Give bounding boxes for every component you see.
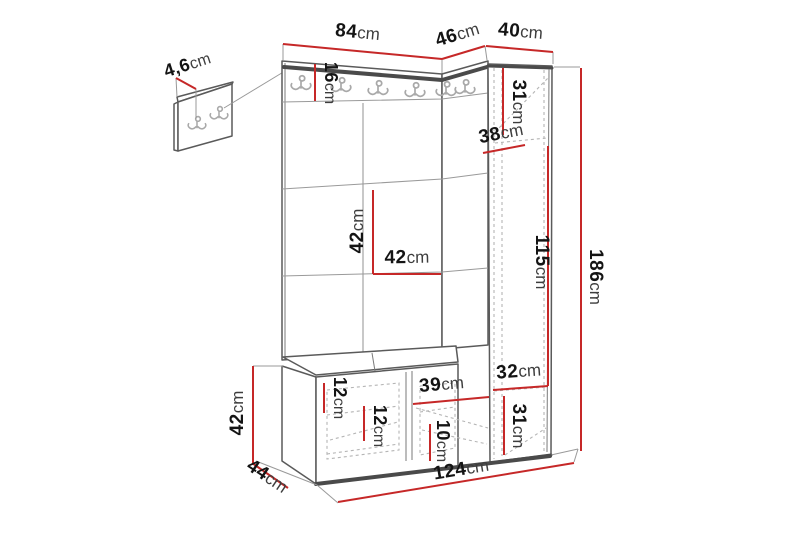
label-bench-shelf-height: 10cm (433, 420, 453, 462)
floor-edge (551, 449, 578, 455)
label-corner-width: 46cm (433, 18, 482, 51)
detail-connector-line (224, 68, 290, 108)
dimension-line-panel-thickness (176, 78, 196, 89)
label-top-width: 84cm (334, 20, 381, 45)
label-panel-thickness: 4,6cm (161, 47, 213, 81)
extension-line (176, 78, 177, 97)
bench-left-face (282, 366, 316, 484)
cabinet-top-dark-edge (488, 66, 552, 68)
label-panel-tile-height: 42cm (347, 209, 368, 254)
wall-hook-panel (174, 68, 290, 151)
label-cabinet-width: 40cm (497, 19, 543, 44)
dimension-line-top-width (283, 44, 442, 59)
label-hook-rail-height: 16cm (321, 62, 341, 104)
label-total-height: 186cm (585, 249, 606, 305)
extension-line (574, 449, 578, 462)
extension-line (317, 485, 338, 503)
label-cabinet-bottom-height: 31cm (508, 404, 529, 449)
corner-panel-face (442, 61, 488, 349)
extension-line (485, 46, 487, 60)
label-bench-inner-height: 12cm (370, 405, 390, 447)
label-cabinet-inner-height: 115cm (531, 235, 552, 290)
label-panel-tile-width: 42cm (384, 247, 429, 269)
label-bench-height: 42cm (227, 391, 248, 436)
dimension-line-cabinet-width (486, 46, 553, 52)
label-cabinet-top-height: 31cm (508, 80, 529, 125)
furniture-dimension-diagram: 4,6cm 84cm 46cm 40cm 16cm 31cm 38cm 42cm… (0, 0, 800, 533)
label-bench-drawer-height: 12cm (330, 377, 350, 419)
